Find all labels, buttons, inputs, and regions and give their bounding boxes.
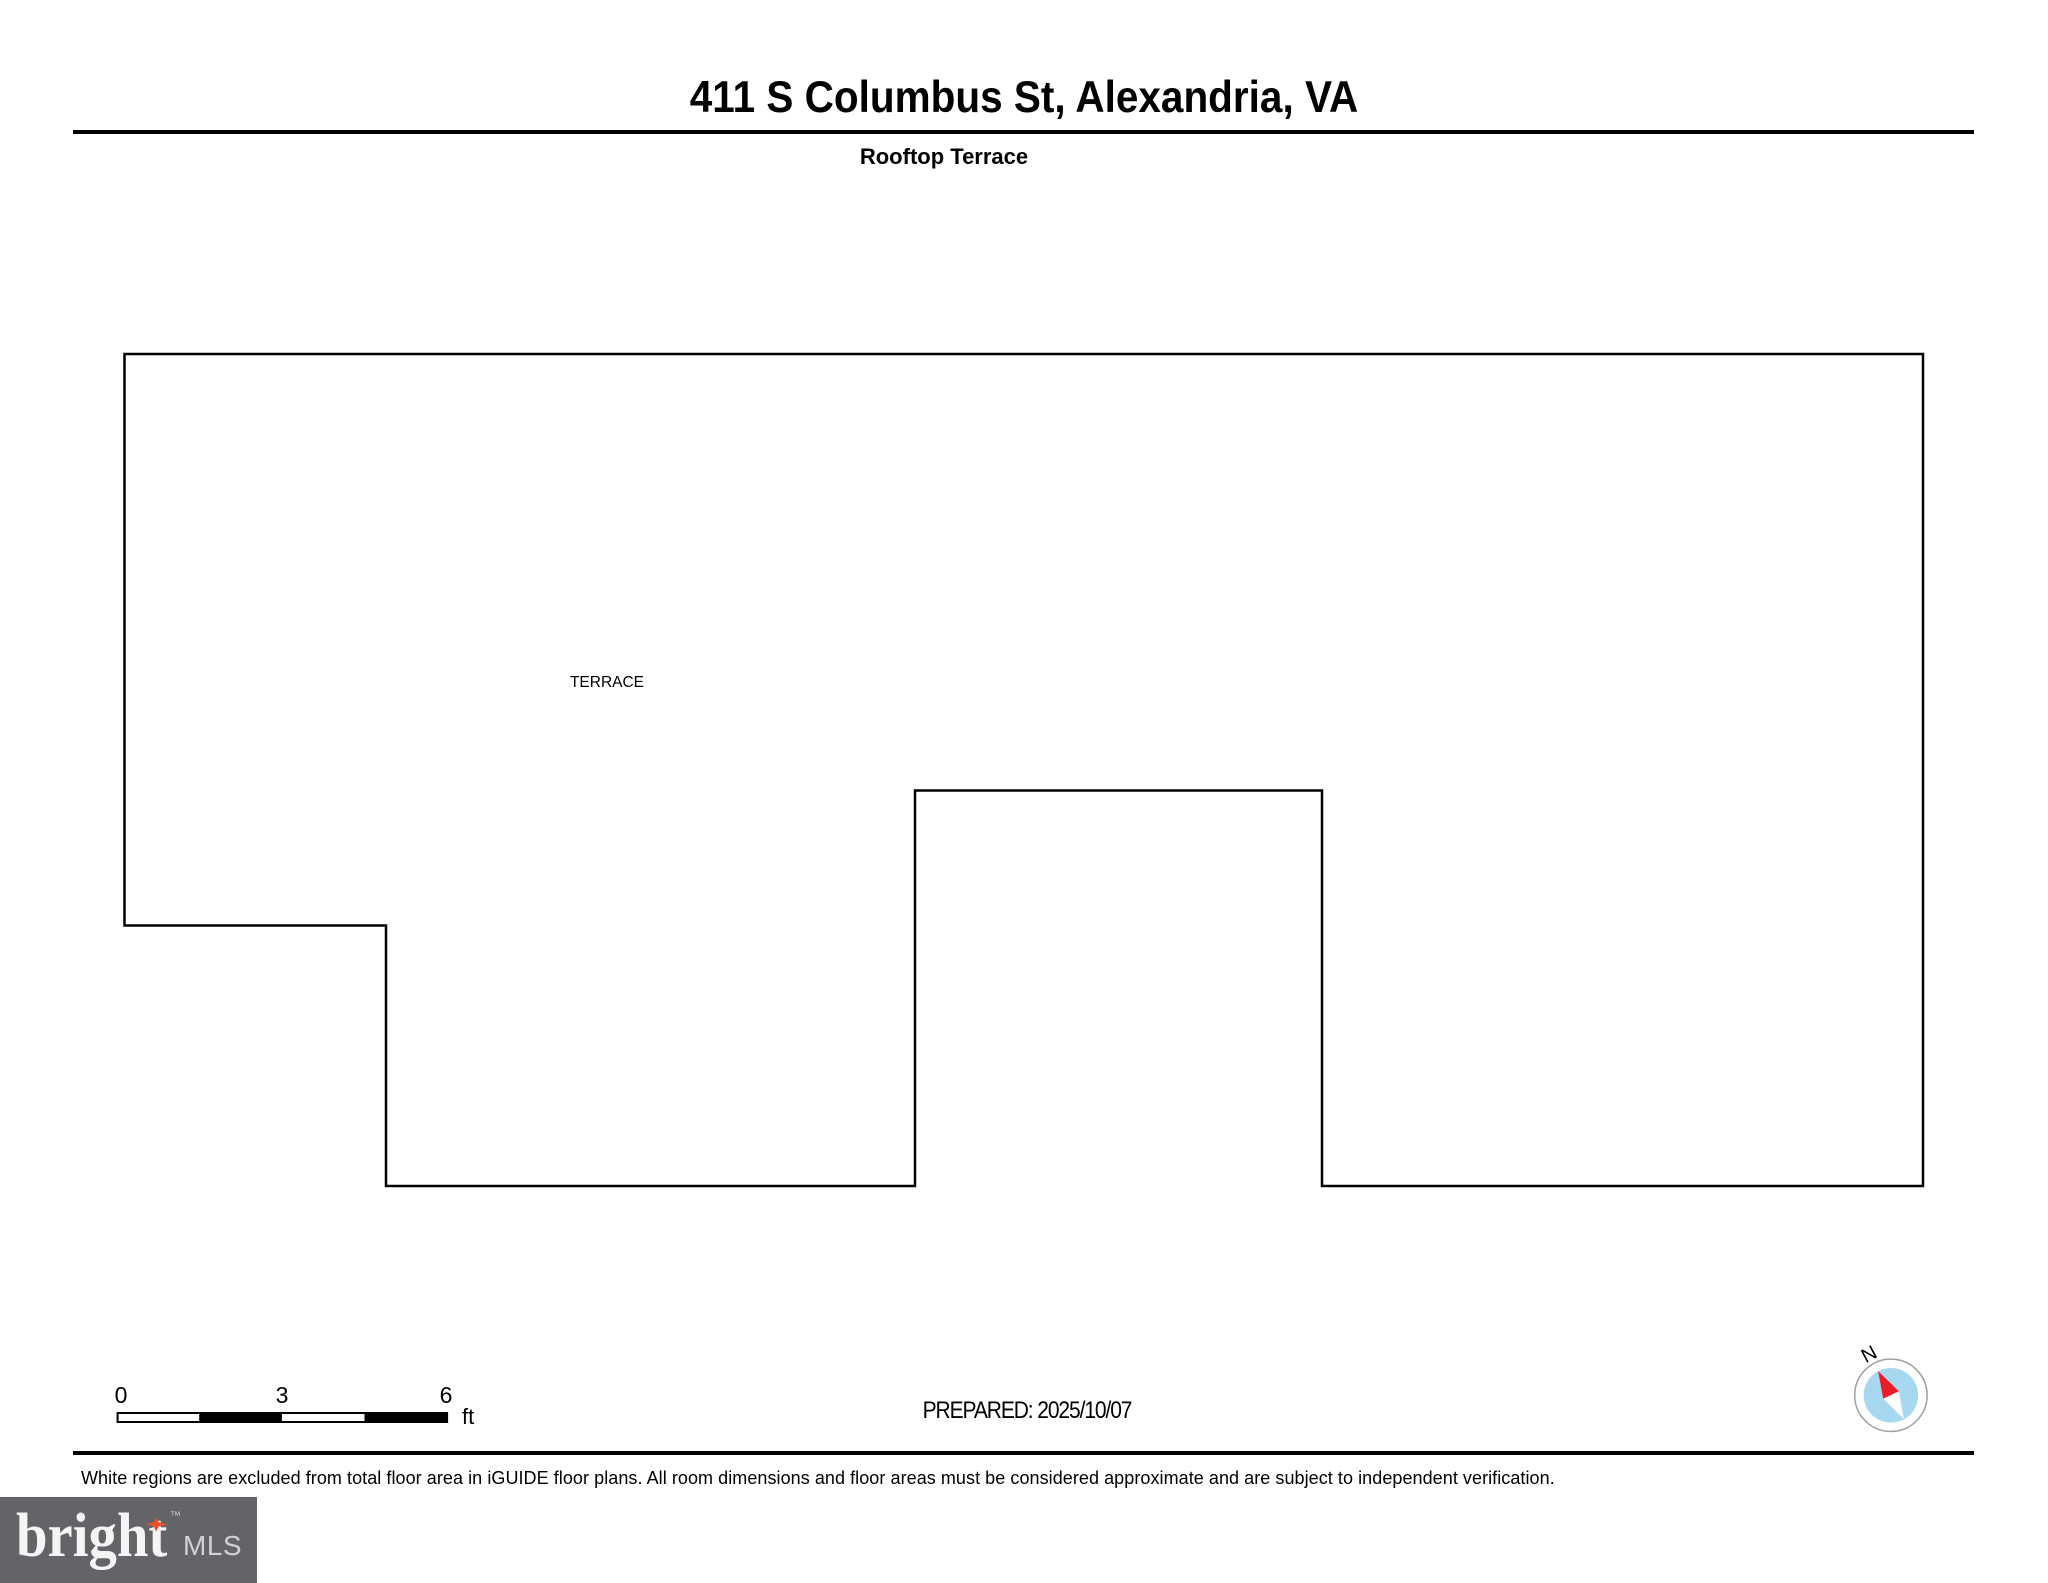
svg-text:3: 3 <box>276 1382 289 1408</box>
svg-text:0: 0 <box>115 1382 128 1408</box>
svg-text:6: 6 <box>440 1382 453 1408</box>
svg-text:ft: ft <box>462 1404 474 1429</box>
